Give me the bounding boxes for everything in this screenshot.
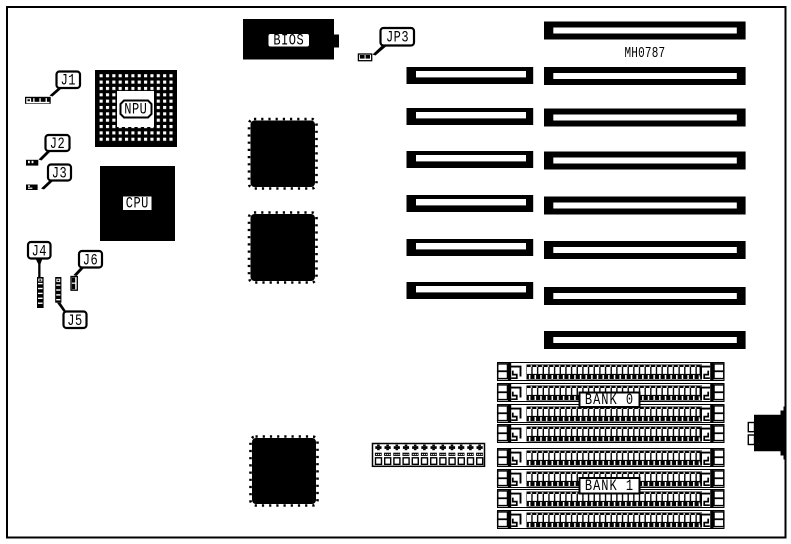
svg-text:J4: J4 bbox=[32, 243, 47, 261]
svg-text:J1: J1 bbox=[61, 72, 76, 90]
svg-text:J5: J5 bbox=[67, 312, 82, 330]
svg-text:CPU: CPU bbox=[126, 195, 149, 213]
svg-text:J3: J3 bbox=[52, 165, 67, 183]
svg-text:JP3: JP3 bbox=[386, 29, 409, 47]
svg-text:BANK 1: BANK 1 bbox=[585, 478, 634, 496]
svg-text:J2: J2 bbox=[50, 136, 65, 154]
svg-text:J6: J6 bbox=[83, 252, 98, 270]
svg-text:NPU: NPU bbox=[124, 101, 147, 119]
svg-text:MH0787: MH0787 bbox=[625, 45, 666, 62]
svg-text:BANK 0: BANK 0 bbox=[585, 392, 634, 410]
svg-text:BIOS: BIOS bbox=[273, 32, 304, 50]
